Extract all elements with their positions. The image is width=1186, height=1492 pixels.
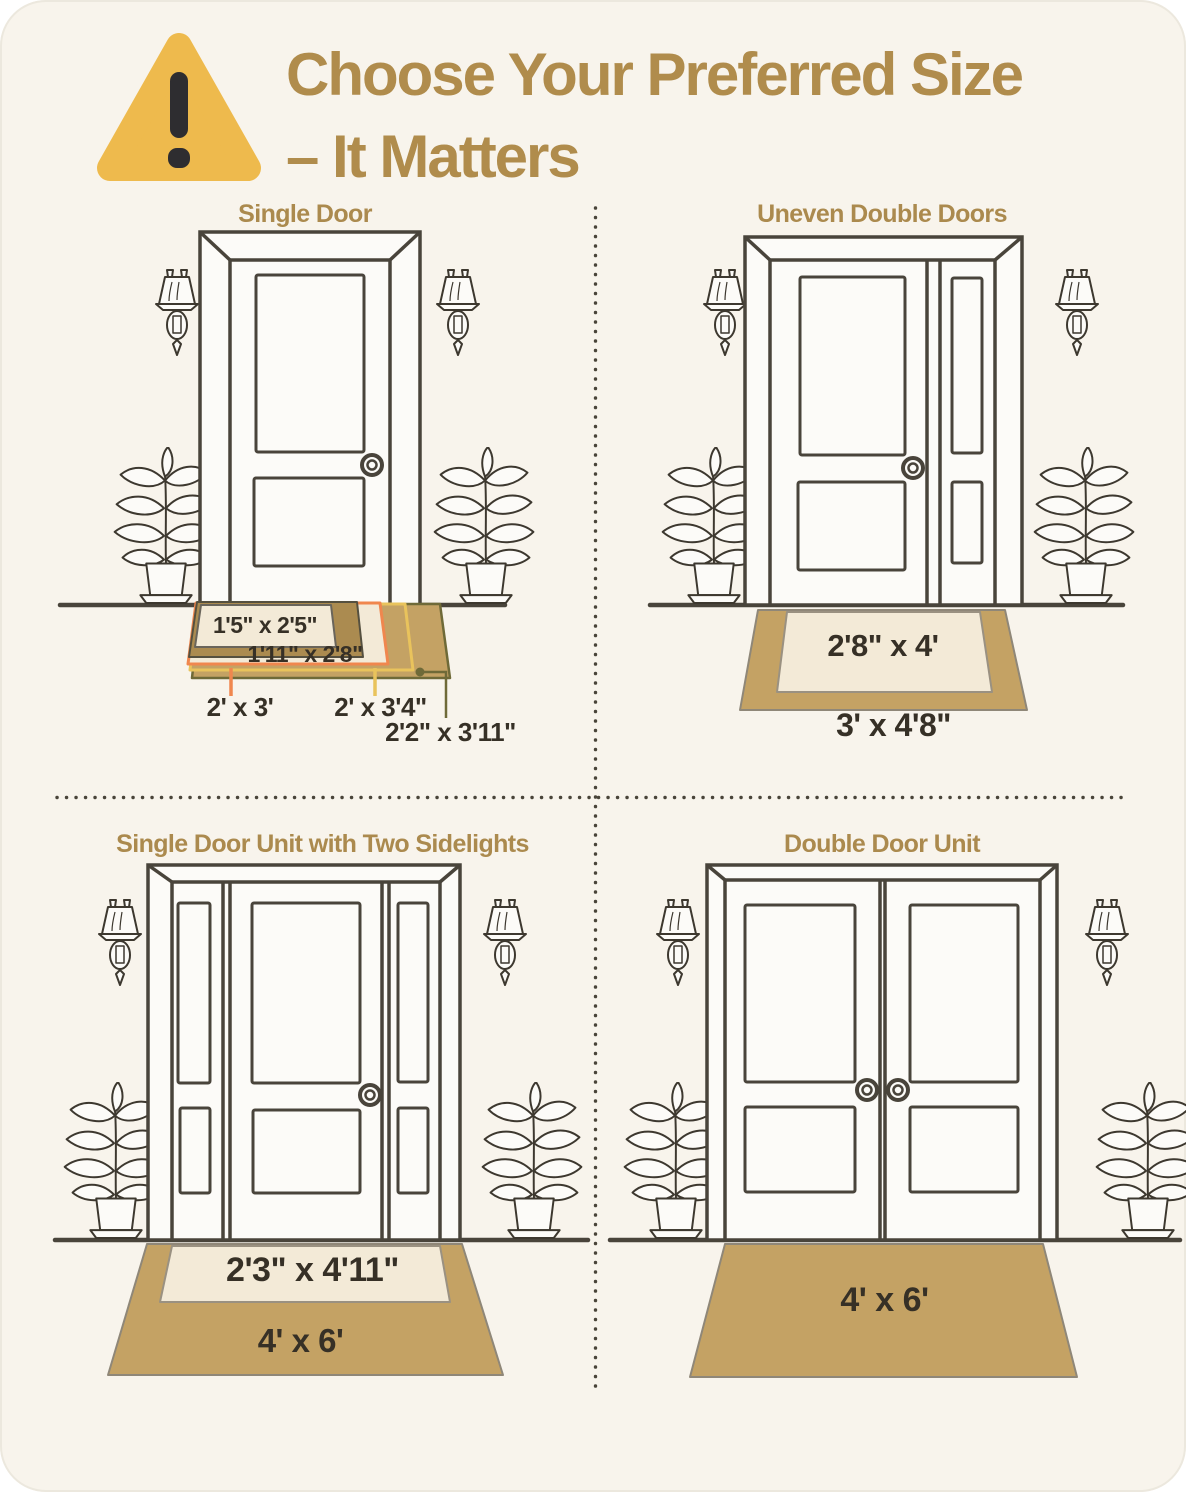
quadrant-label-uneven-double-doors: Uneven Double Doors xyxy=(682,200,1082,229)
mat-size-label: 3' x 4'8" xyxy=(791,707,996,744)
mat-size-label: 2'8" x 4' xyxy=(783,628,983,664)
quadrant-label-single-door-sidelights: Single Door Unit with Two Sidelights xyxy=(60,830,585,859)
plant-icon xyxy=(1035,447,1134,603)
mat-size-label: 4' x 6' xyxy=(782,1281,987,1320)
mat-size-label: 2'2" x 3'11" xyxy=(368,717,533,748)
size-guide-infographic: Choose Your Preferred Size – It Matters … xyxy=(0,0,1186,1492)
single-door-with-sidelights xyxy=(148,865,460,1240)
mat-size-label: 4' x 6' xyxy=(198,1322,403,1360)
sconce-icon xyxy=(704,270,746,355)
sconce-icon xyxy=(484,900,526,985)
plant-icon xyxy=(1097,1082,1186,1238)
sconce-icon xyxy=(437,270,479,355)
sconce-icon xyxy=(1086,900,1128,985)
sconce-icon xyxy=(99,900,141,985)
sconce-icon xyxy=(156,270,198,355)
sconce-icon xyxy=(1056,270,1098,355)
mat-size-label: 2' x 3' xyxy=(175,692,305,723)
single-door-sidelights-illustration xyxy=(55,860,595,1392)
mat-size-label: 1'11" x 2'8" xyxy=(225,641,385,668)
sconce-icon xyxy=(657,900,699,985)
single-door-illustration xyxy=(55,228,595,760)
single-door xyxy=(200,232,420,605)
uneven-double-doors xyxy=(745,237,1022,605)
quadrant-label-single-door: Single Door xyxy=(130,200,480,229)
uneven-double-doors-illustration xyxy=(595,228,1185,760)
mat-size-label: 2'3" x 4'11" xyxy=(190,1251,435,1290)
plant-icon xyxy=(483,1082,582,1238)
mat-size-label: 1'5" x 2'5" xyxy=(190,612,340,639)
quadrant-label-double-door: Double Door Unit xyxy=(682,830,1082,859)
plant-icon xyxy=(435,447,534,603)
double-doors xyxy=(707,865,1057,1240)
